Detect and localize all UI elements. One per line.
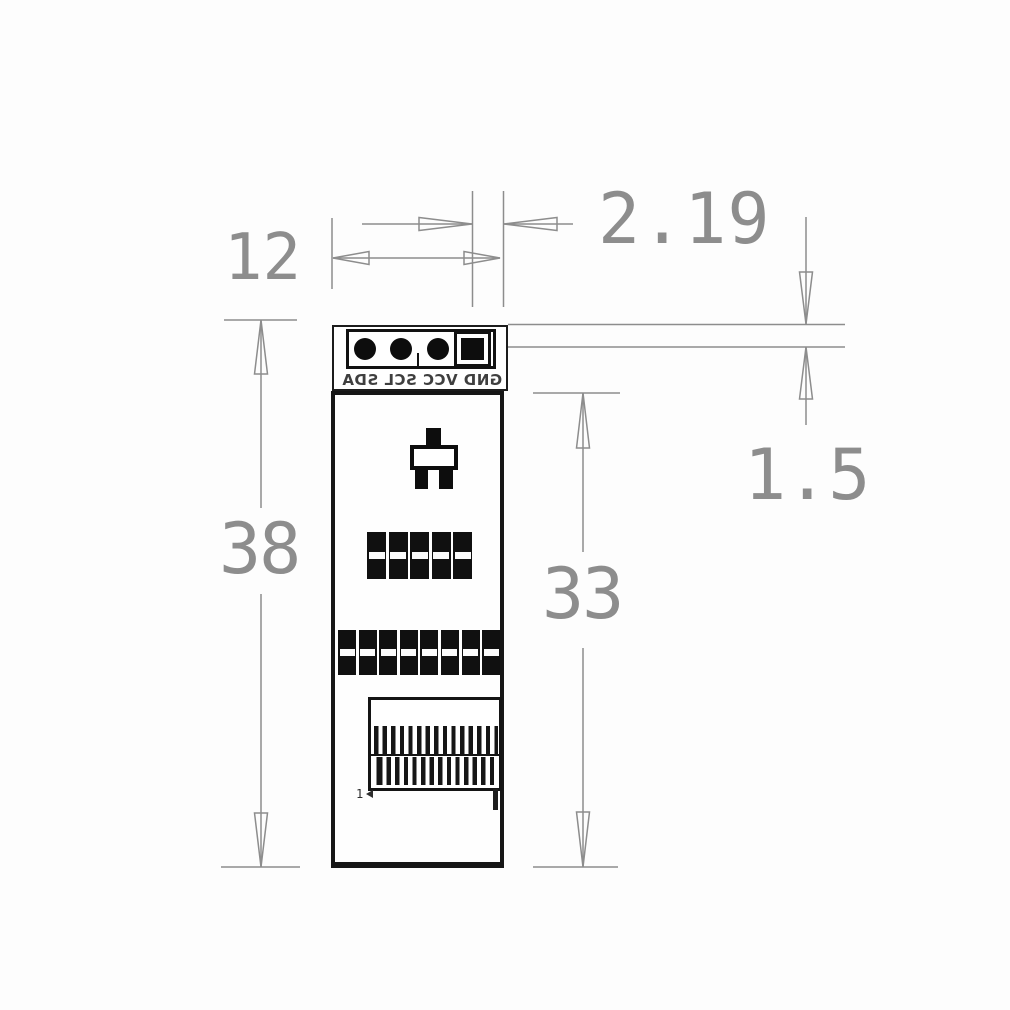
pad-column bbox=[367, 532, 386, 579]
pin-pad-square-gnd bbox=[461, 338, 484, 360]
dim-height-38-lines bbox=[221, 320, 300, 867]
dimension-width-label: 12 bbox=[224, 226, 301, 290]
pad-column bbox=[338, 630, 356, 675]
pad-column bbox=[482, 630, 500, 675]
smd-pad-grid-8col bbox=[338, 630, 500, 675]
pad-column bbox=[420, 630, 438, 675]
pad-column bbox=[359, 630, 377, 675]
pad-column bbox=[379, 630, 397, 675]
dimension-drawing: 12 2.19 38 33 1.5 GND VCC SCL SDA bbox=[0, 0, 1010, 1010]
pad-column bbox=[453, 532, 472, 579]
pad-column bbox=[441, 630, 459, 675]
comb-crossline bbox=[371, 754, 501, 756]
comb-pattern-lower bbox=[376, 757, 498, 785]
pin-pad-round-vcc bbox=[427, 338, 449, 360]
pin-pad-round-scl bbox=[390, 338, 412, 360]
dimension-pin-offset-label: 2.19 bbox=[598, 184, 771, 254]
pad-divider-line bbox=[417, 353, 419, 368]
pin1-marker-label: 1 bbox=[356, 787, 363, 801]
pad-column bbox=[410, 532, 429, 579]
transistor-footprint-leg-left bbox=[415, 468, 428, 489]
transistor-footprint-body bbox=[410, 445, 458, 470]
pad-column bbox=[462, 630, 480, 675]
pin1-marker: 1 bbox=[356, 787, 373, 801]
edge-silk-mark bbox=[493, 789, 498, 810]
pad-column bbox=[432, 532, 451, 579]
smd-pad-grid-5col bbox=[367, 532, 472, 579]
pin-pad-round-sda bbox=[354, 338, 376, 360]
pad-column bbox=[389, 532, 408, 579]
dimension-overall-height-label: 38 bbox=[219, 514, 299, 584]
pin-header-section: GND VCC SCL SDA bbox=[332, 325, 508, 391]
left-triangle-icon bbox=[366, 790, 373, 798]
dimension-thickness-label: 1.5 bbox=[744, 440, 870, 510]
transistor-footprint-leg-right bbox=[439, 468, 453, 489]
pin-labels-text-mirrored: GND VCC SCL SDA bbox=[336, 369, 508, 391]
dimension-body-height-label: 33 bbox=[542, 559, 622, 629]
dim-width-12-lines bbox=[332, 218, 500, 289]
comb-pattern-upper bbox=[374, 726, 498, 756]
dim-offset-219-lines bbox=[362, 191, 573, 307]
pad-column bbox=[400, 630, 418, 675]
